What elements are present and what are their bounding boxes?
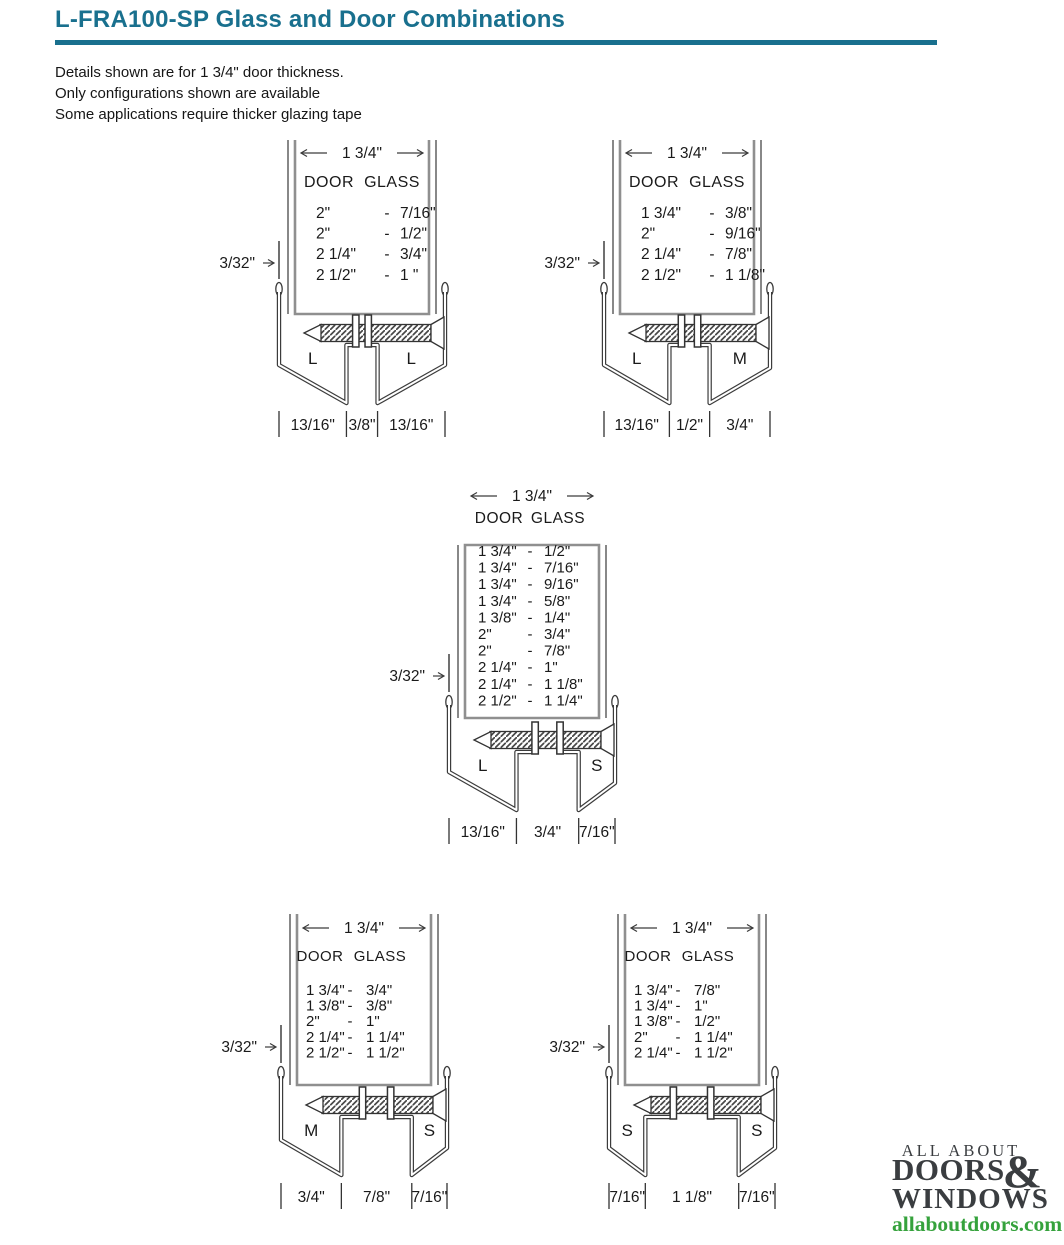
row-separator: - xyxy=(528,593,533,610)
leg-label: S xyxy=(591,756,602,775)
column-header-door: DOOR xyxy=(625,948,672,965)
row-separator: - xyxy=(528,692,533,709)
screw-shank xyxy=(650,1097,761,1114)
bottom-dimension-label: 13/16" xyxy=(461,824,505,841)
row-separator: - xyxy=(709,267,714,284)
row-glass-value: 1 1/4" xyxy=(366,1029,405,1046)
row-door-value: 1 3/4" xyxy=(634,998,673,1015)
glass-door-diagram-top-right: LM13/16"1/2"3/4"1 3/4"DOORGLASS1 3/4"-3/… xyxy=(544,140,773,437)
row-separator: - xyxy=(348,1013,353,1030)
column-header-glass: GLASS xyxy=(531,510,585,527)
column-header-glass: GLASS xyxy=(689,174,745,191)
screw-tip xyxy=(634,1097,651,1114)
frame-profile-line xyxy=(388,1076,447,1175)
screw-shank xyxy=(320,325,431,342)
row-glass-value: 1 1/2" xyxy=(366,1044,405,1061)
side-dimension-label: 3/32" xyxy=(221,1039,257,1056)
column-header-glass: GLASS xyxy=(364,174,420,191)
row-glass-value: 9/16" xyxy=(725,226,761,243)
bottom-dimension-label: 1 1/8" xyxy=(672,1189,712,1206)
row-glass-value: 7/8" xyxy=(544,643,570,660)
frame-profile-line-inner xyxy=(708,1076,775,1175)
row-glass-value: 1 1/8" xyxy=(725,267,765,284)
frame-profile-line-inner xyxy=(557,705,615,810)
column-header-door: DOOR xyxy=(629,174,679,191)
bottom-dimension-label: 7/8" xyxy=(363,1189,390,1206)
bottom-dimension-label: 13/16" xyxy=(291,417,335,434)
screw-head xyxy=(761,1089,774,1121)
screw-tip xyxy=(304,325,321,342)
bottom-dimension-label: 3/4" xyxy=(534,824,561,841)
bottom-dimension-label: 3/4" xyxy=(298,1189,325,1206)
bead-tab xyxy=(678,315,684,347)
row-separator: - xyxy=(528,659,533,676)
row-glass-value: 7/16" xyxy=(544,560,579,577)
bottom-dimension-label: 7/16" xyxy=(739,1189,775,1206)
row-glass-value: 1/2" xyxy=(544,543,570,560)
top-dimension-label: 1 3/4" xyxy=(667,145,707,162)
screw-tip xyxy=(629,325,646,342)
row-door-value: 2" xyxy=(478,643,492,660)
row-door-value: 1 3/4" xyxy=(478,560,517,577)
row-separator: - xyxy=(676,1044,681,1061)
row-glass-value: 1" xyxy=(544,659,558,676)
row-door-value: 2" xyxy=(641,226,655,243)
frame-profile-line-inner xyxy=(609,1076,676,1175)
diagram-canvas: LL13/16"3/8"13/16"1 3/4"DOORGLASS2"-7/16… xyxy=(0,0,1064,1245)
row-door-value: 2" xyxy=(316,205,330,222)
row-separator: - xyxy=(676,982,681,999)
row-glass-value: 1 1/4" xyxy=(544,692,583,709)
row-door-value: 1 3/4" xyxy=(634,982,673,999)
frame-profile-line xyxy=(449,705,538,810)
row-glass-value: 3/4" xyxy=(400,246,427,263)
row-door-value: 1 3/8" xyxy=(306,998,345,1015)
frame-profile-line xyxy=(557,705,615,810)
row-door-value: 1 3/4" xyxy=(478,543,517,560)
row-glass-value: 9/16" xyxy=(544,576,579,593)
leg-label: M xyxy=(304,1121,318,1140)
logo-doors: DOORS xyxy=(892,1152,1005,1187)
row-separator: - xyxy=(528,626,533,643)
row-door-value: 2 1/4" xyxy=(306,1029,345,1046)
row-door-value: 2" xyxy=(306,1013,320,1030)
row-separator: - xyxy=(676,1013,681,1030)
row-glass-value: 1" xyxy=(366,1013,380,1030)
bottom-dimension-label: 13/16" xyxy=(389,417,433,434)
row-separator: - xyxy=(528,560,533,577)
row-glass-value: 1" xyxy=(694,998,708,1015)
bottom-dimension-label: 3/8" xyxy=(348,417,375,434)
bottom-dimension-label: 7/16" xyxy=(609,1189,645,1206)
row-separator: - xyxy=(348,1029,353,1046)
row-glass-value: 3/4" xyxy=(366,982,392,999)
top-dimension-label: 1 3/4" xyxy=(344,920,384,937)
top-dimension-label: 1 3/4" xyxy=(672,920,712,937)
row-door-value: 1 3/4" xyxy=(478,593,517,610)
logo-windows: WINDOWS xyxy=(892,1187,1064,1211)
row-glass-value: 1 1/4" xyxy=(694,1029,733,1046)
row-glass-value: 1/4" xyxy=(544,609,570,626)
frame-profile-line-inner xyxy=(281,1076,365,1175)
side-dimension-label: 3/32" xyxy=(219,255,255,272)
bottom-dimension-label: 13/16" xyxy=(615,417,659,434)
row-door-value: 2 1/4" xyxy=(478,659,517,676)
row-separator: - xyxy=(709,205,714,222)
row-glass-value: 1/2" xyxy=(400,226,427,243)
row-separator: - xyxy=(528,643,533,660)
frame-profile-line xyxy=(281,1076,365,1175)
row-door-value: 1 3/4" xyxy=(641,205,681,222)
logo-url: allaboutdoors.com xyxy=(892,1213,1064,1235)
column-header-door: DOOR xyxy=(304,174,354,191)
bead-tab xyxy=(707,1087,713,1119)
row-separator: - xyxy=(348,982,353,999)
column-header-glass: GLASS xyxy=(682,948,735,965)
screw-head xyxy=(601,724,614,756)
leg-label: S xyxy=(424,1121,435,1140)
row-separator: - xyxy=(676,998,681,1015)
screw-tip xyxy=(474,732,491,749)
glass-door-diagram-top-left: LL13/16"3/8"13/16"1 3/4"DOORGLASS2"-7/16… xyxy=(219,140,448,437)
glass-door-diagram-bottom-right: SS7/16"1 1/8"7/16"1 3/4"DOORGLASS1 3/4"-… xyxy=(549,914,778,1209)
row-glass-value: 7/8" xyxy=(725,246,752,263)
row-glass-value: 1 1/2" xyxy=(694,1044,733,1061)
frame-profile-line-inner xyxy=(388,1076,447,1175)
row-door-value: 1 3/8" xyxy=(634,1013,673,1030)
bead-tab xyxy=(670,1087,676,1119)
row-separator: - xyxy=(348,1044,353,1061)
row-glass-value: 3/8" xyxy=(725,205,752,222)
bead-tab xyxy=(557,722,563,754)
row-door-value: 2 1/2" xyxy=(478,692,517,709)
screw-icon xyxy=(474,724,614,756)
screw-icon xyxy=(306,1089,446,1121)
row-separator: - xyxy=(348,998,353,1015)
screw-head xyxy=(431,317,444,349)
row-separator: - xyxy=(384,226,389,243)
top-dimension-label: 1 3/4" xyxy=(342,145,382,162)
row-separator: - xyxy=(528,676,533,693)
bead-tab xyxy=(359,1087,365,1119)
row-door-value: 1 3/8" xyxy=(478,609,517,626)
screw-shank xyxy=(490,732,601,749)
row-door-value: 2 1/2" xyxy=(306,1044,345,1061)
row-glass-value: 7/8" xyxy=(694,982,720,999)
row-door-value: 2" xyxy=(316,226,330,243)
row-separator: - xyxy=(384,205,389,222)
row-glass-value: 1 1/8" xyxy=(544,676,583,693)
row-door-value: 2 1/4" xyxy=(316,246,356,263)
bead-tab xyxy=(365,315,371,347)
row-door-value: 2" xyxy=(634,1029,648,1046)
row-door-value: 1 3/4" xyxy=(478,576,517,593)
top-dimension-label: 1 3/4" xyxy=(512,488,552,505)
glass-door-diagram-middle: LS13/16"3/4"7/16"1 3/4"DOORGLASS1 3/4"-1… xyxy=(389,488,618,844)
row-door-value: 2 1/4" xyxy=(634,1044,673,1061)
row-separator: - xyxy=(528,543,533,560)
side-dimension-label: 3/32" xyxy=(549,1039,585,1056)
row-door-value: 2 1/2" xyxy=(641,267,681,284)
leg-label: L xyxy=(308,349,317,368)
leg-label: L xyxy=(478,756,487,775)
bottom-dimension-label: 7/16" xyxy=(579,824,615,841)
bottom-dimension-label: 1/2" xyxy=(676,417,703,434)
column-header-glass: GLASS xyxy=(354,948,407,965)
column-header-door: DOOR xyxy=(475,510,524,527)
frame-profile-line-inner xyxy=(449,705,538,810)
row-door-value: 2" xyxy=(478,626,492,643)
row-glass-value: 3/8" xyxy=(366,998,392,1015)
frame-profile-line xyxy=(708,1076,775,1175)
side-dimension-label: 3/32" xyxy=(544,255,580,272)
row-door-value: 2 1/4" xyxy=(478,676,517,693)
row-separator: - xyxy=(676,1029,681,1046)
bottom-dimension-label: 3/4" xyxy=(726,417,753,434)
leg-label: L xyxy=(632,349,641,368)
frame-profile-line xyxy=(609,1076,676,1175)
leg-label: S xyxy=(751,1121,762,1140)
bead-tab xyxy=(694,315,700,347)
row-door-value: 2 1/2" xyxy=(316,267,356,284)
row-separator: - xyxy=(384,267,389,284)
bead-tab xyxy=(387,1087,393,1119)
column-header-door: DOOR xyxy=(297,948,344,965)
side-dimension-label: 3/32" xyxy=(389,668,425,685)
row-separator: - xyxy=(528,609,533,626)
logo: ALL ABOUT DOORS& WINDOWS allaboutdoors.c… xyxy=(888,1143,1064,1235)
row-glass-value: 7/16" xyxy=(400,205,436,222)
row-glass-value: 5/8" xyxy=(544,593,570,610)
leg-label: L xyxy=(407,349,416,368)
row-separator: - xyxy=(384,246,389,263)
screw-shank xyxy=(322,1097,433,1114)
row-separator: - xyxy=(709,226,714,243)
screw-head xyxy=(433,1089,446,1121)
leg-label: S xyxy=(621,1121,632,1140)
row-separator: - xyxy=(709,246,714,263)
bottom-dimension-label: 7/16" xyxy=(412,1189,448,1206)
leg-label: M xyxy=(733,349,747,368)
row-glass-value: 3/4" xyxy=(544,626,570,643)
bead-tab xyxy=(532,722,538,754)
glass-door-diagram-bottom-left: MS3/4"7/8"7/16"1 3/4"DOORGLASS1 3/4"-3/4… xyxy=(221,914,450,1209)
bead-tab xyxy=(353,315,359,347)
row-door-value: 1 3/4" xyxy=(306,982,345,999)
row-door-value: 2 1/4" xyxy=(641,246,681,263)
screw-tip xyxy=(306,1097,323,1114)
row-glass-value: 1 " xyxy=(400,267,418,284)
row-separator: - xyxy=(528,576,533,593)
screw-head xyxy=(756,317,769,349)
row-glass-value: 1/2" xyxy=(694,1013,720,1030)
